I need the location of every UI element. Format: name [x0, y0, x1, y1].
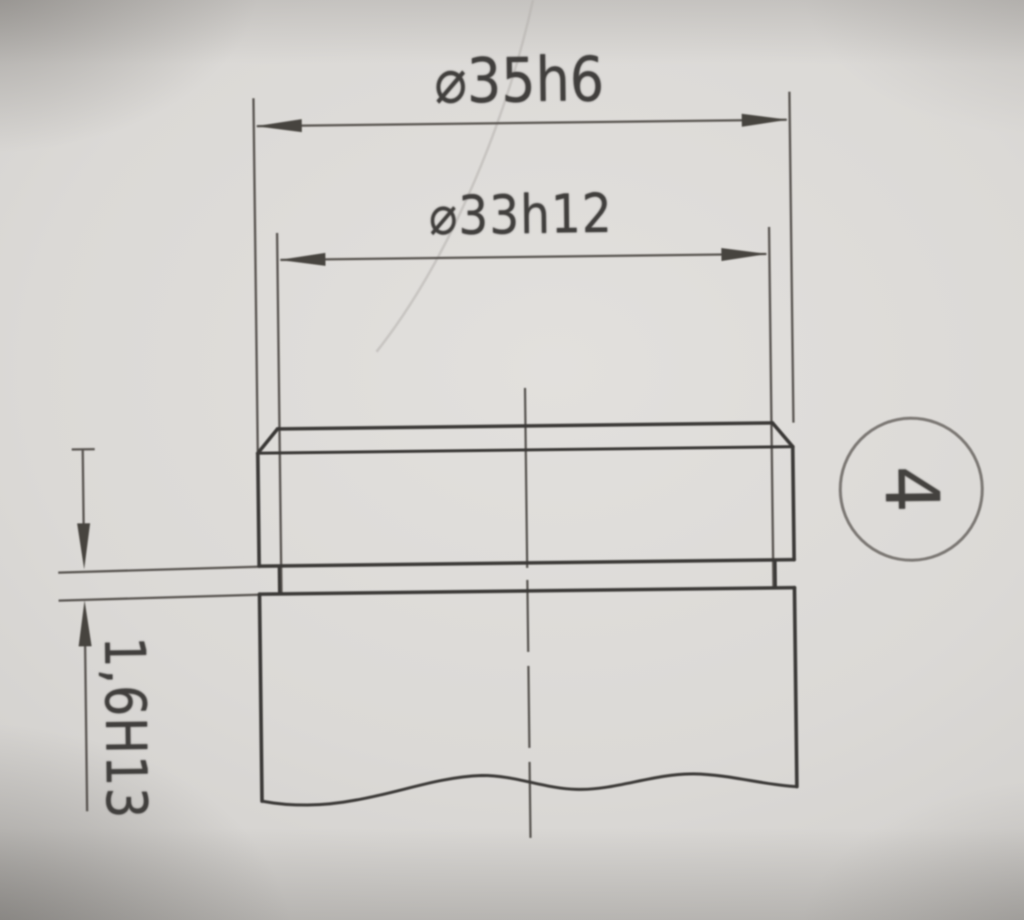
arrowhead-down-icon — [77, 523, 91, 569]
dimension-line-lower — [85, 639, 87, 811]
technical-drawing: ⌀35h6 ⌀33h12 1,6H13 4 — [0, 0, 1024, 920]
dimension-line — [257, 120, 787, 126]
extension-line-left — [277, 233, 281, 593]
extension-line-left — [253, 98, 257, 451]
arrowhead-left-icon — [256, 119, 302, 133]
lower-left-edge — [259, 594, 262, 801]
arrowhead-right-icon — [721, 247, 767, 261]
groove-diameter-label: ⌀33h12 — [371, 184, 672, 247]
extension-line-upper — [58, 567, 259, 573]
outer-diameter-label: ⌀35h6 — [369, 46, 670, 116]
dim-outer-diameter — [253, 92, 793, 452]
dimension-line — [280, 254, 766, 260]
arrowhead-left-icon — [279, 253, 325, 267]
dim-groove-width — [57, 447, 262, 811]
upper-left-edge — [258, 453, 259, 566]
center-line — [525, 388, 530, 838]
balloon-number: 4 — [871, 429, 952, 550]
extension-line-right — [789, 92, 793, 423]
upper-right-edge — [793, 447, 794, 560]
dimension-line-upper — [83, 449, 84, 527]
extension-line-lower — [59, 595, 260, 601]
arrowhead-up-icon — [78, 600, 92, 646]
photo-background: ⌀35h6 ⌀33h12 1,6H13 4 — [0, 0, 1024, 920]
arrowhead-right-icon — [742, 113, 788, 127]
chamfer-right-edge — [772, 423, 792, 447]
lower-right-edge — [794, 588, 796, 787]
extension-line-right — [769, 227, 773, 587]
groove-width-label: 1,6H13 — [93, 577, 156, 880]
chamfer-left-edge — [257, 429, 277, 453]
